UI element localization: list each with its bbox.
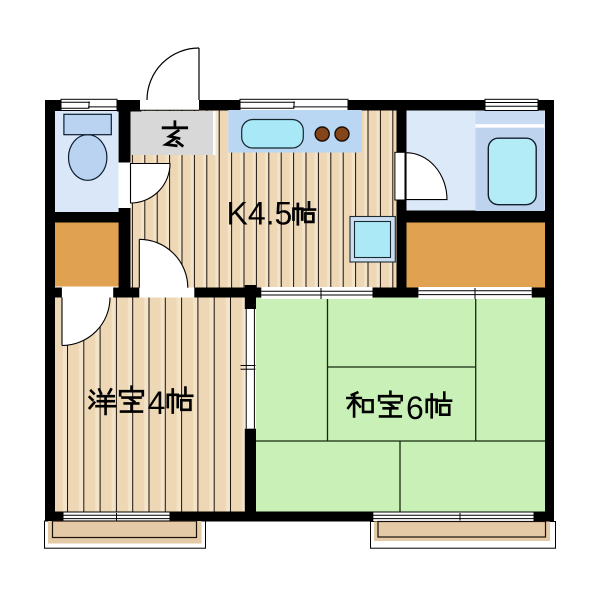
svg-text:4: 4 <box>148 385 166 421</box>
svg-text:6: 6 <box>406 390 424 426</box>
svg-text:K4.5: K4.5 <box>227 195 293 231</box>
